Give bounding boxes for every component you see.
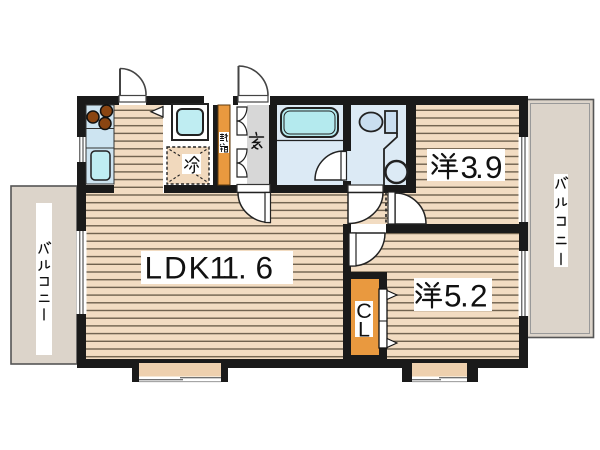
svg-text:L: L bbox=[358, 318, 370, 342]
svg-text:5.2: 5.2 bbox=[444, 278, 488, 314]
svg-text:3.9: 3.9 bbox=[461, 149, 503, 185]
